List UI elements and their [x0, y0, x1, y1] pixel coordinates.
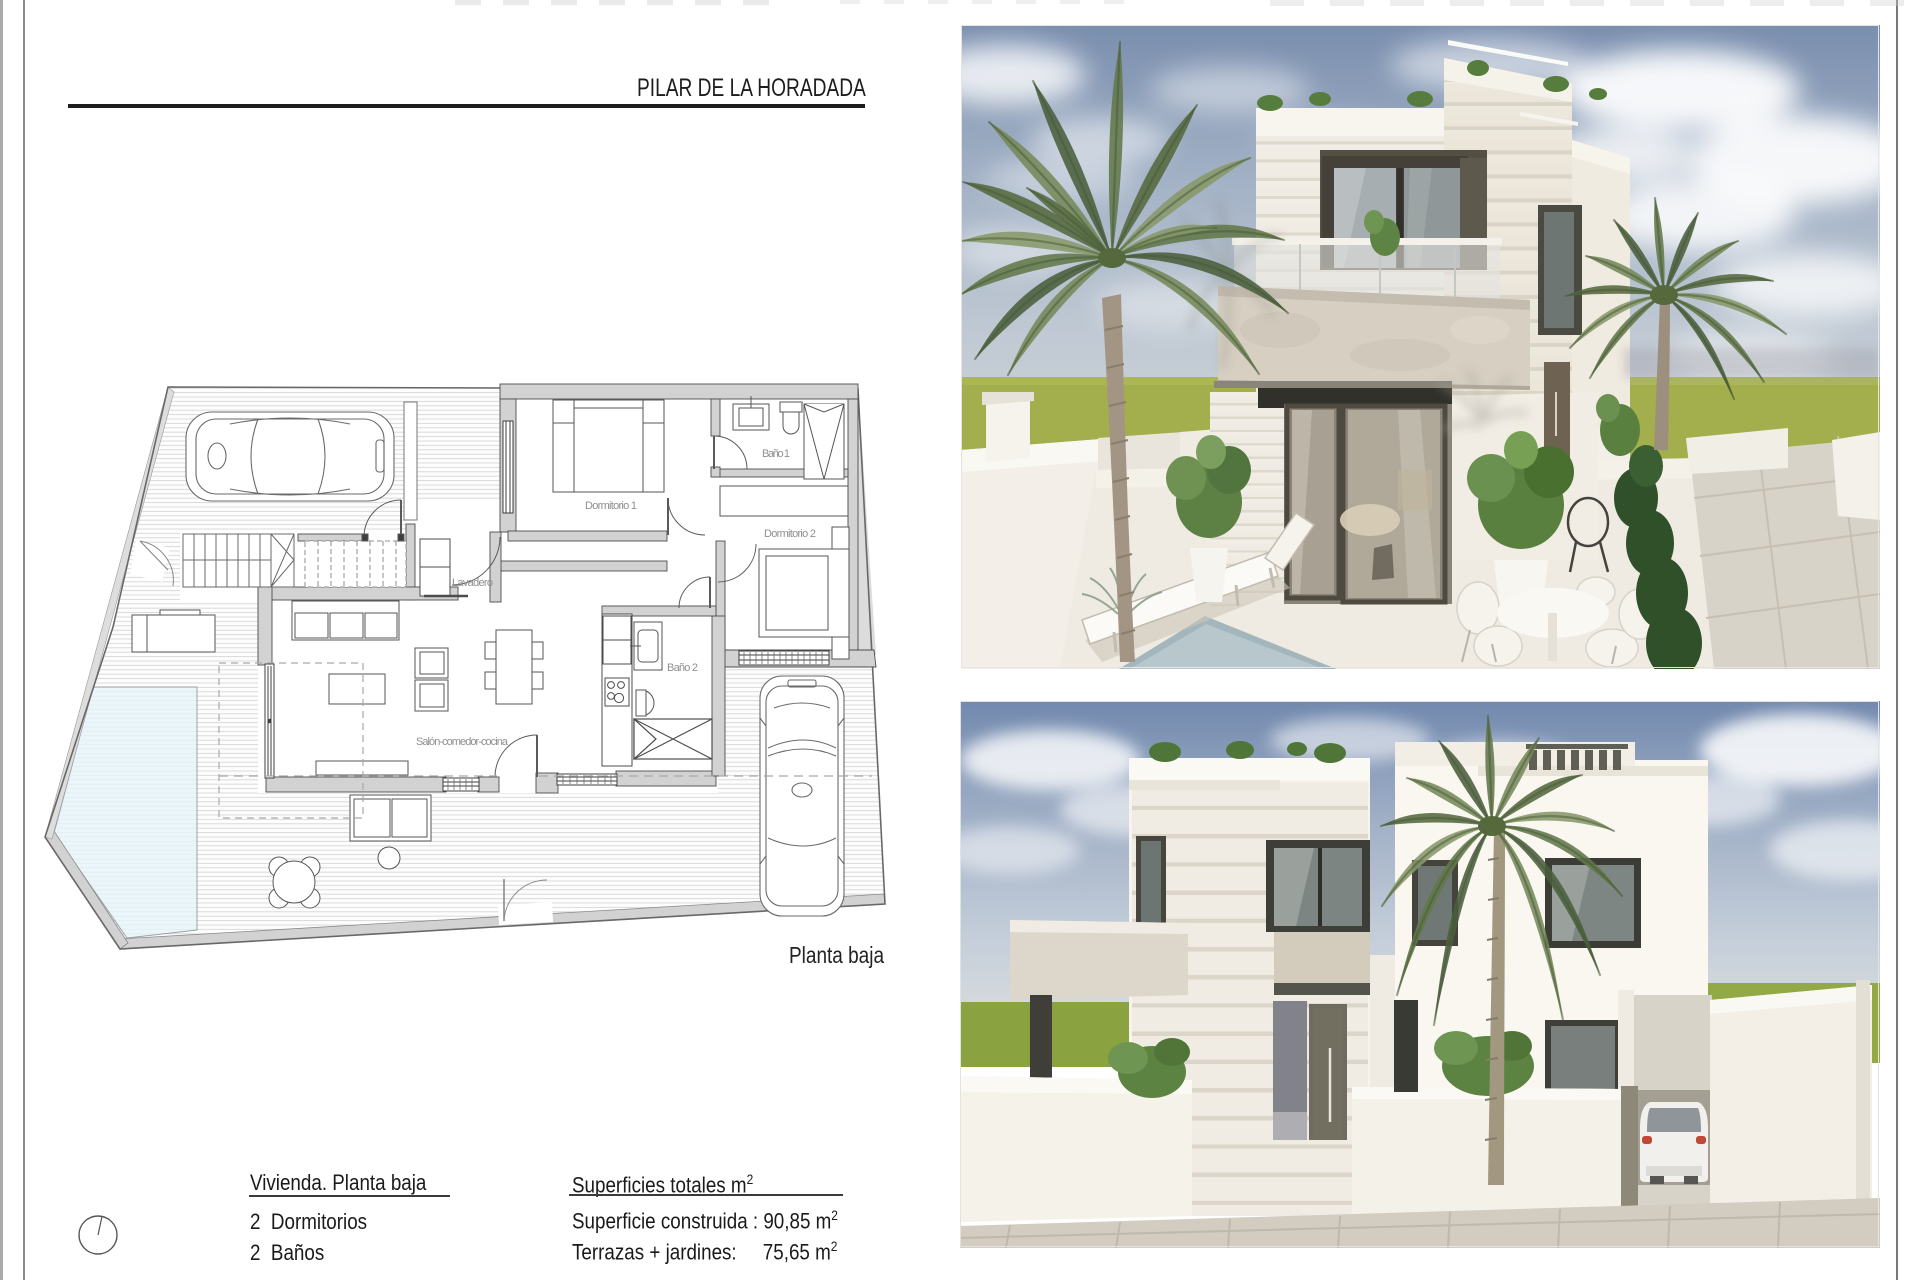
svg-text:Baño 2: Baño 2: [667, 662, 698, 674]
svg-text:Baño 1: Baño 1: [762, 448, 790, 460]
svg-text:Lavadero: Lavadero: [452, 577, 493, 589]
svg-text:Dormitorio 2: Dormitorio 2: [764, 528, 816, 540]
svg-text:Dormitorio 1: Dormitorio 1: [585, 500, 637, 512]
svg-text:Salón-comedor-cocina: Salón-comedor-cocina: [416, 736, 509, 748]
svg-text:Planta baja: Planta baja: [789, 942, 884, 968]
